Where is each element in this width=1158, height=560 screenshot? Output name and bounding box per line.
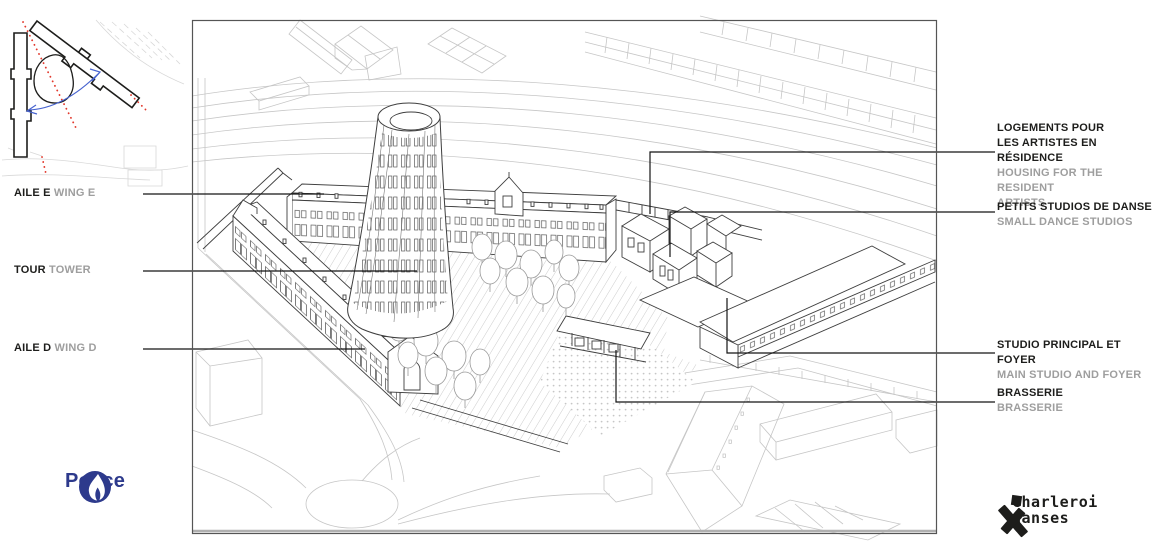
label-petits-studios-fr: PETITS STUDIOS DE DANSE [997, 200, 1158, 215]
label-studio-principal: STUDIO PRINCIPAL ET FOYER MAIN STUDIO AN… [997, 338, 1158, 383]
charleroi-x-icon [998, 494, 1032, 538]
label-brasserie-fr: BRASSERIE [997, 386, 1158, 401]
label-aile-e: AILE E WING E [14, 186, 95, 201]
axonometric-drawing [143, 16, 995, 540]
label-petits-studios-en: SMALL DANCE STUDIOS [997, 215, 1158, 230]
line-artwork [0, 0, 1158, 560]
label-aile-d-fr: AILE D [14, 342, 51, 354]
site-plan-context-lines [2, 20, 188, 186]
label-studio-principal-en: MAIN STUDIO AND FOYER [997, 368, 1158, 383]
site-plan-buildings [11, 17, 142, 157]
label-aile-d-en: WING D [55, 342, 97, 354]
label-logements-fr-line2: LES ARTISTES EN RÉSIDENCE [997, 136, 1158, 166]
aile-e-central-pavilion [495, 172, 523, 216]
label-brasserie: BRASSERIE BRASSERIE [997, 386, 1158, 416]
label-tour-fr: TOUR [14, 264, 46, 276]
site-plan-diagram [2, 17, 188, 186]
label-logements-fr-line1: LOGEMENTS POUR [997, 121, 1158, 136]
charleroi-danses-logo: charleroi danses [998, 494, 1098, 526]
existing-hall [666, 386, 784, 532]
label-tour: TOUR TOWER [14, 263, 91, 278]
site-plan-wing-d-footprint [27, 17, 142, 112]
police-flame-icon [64, 466, 126, 508]
site-plan-wing-e-footprint [11, 33, 31, 157]
label-studio-principal-fr: STUDIO PRINCIPAL ET FOYER [997, 338, 1158, 368]
architectural-diagram-page: AILE E WING E TOUR TOWER AILE D WING D L… [0, 0, 1158, 560]
site-plan-tower-footprint [34, 55, 73, 103]
label-logements-en-line1: HOUSING FOR THE RESIDENT [997, 166, 1158, 196]
label-petits-studios: PETITS STUDIOS DE DANSE SMALL DANCE STUD… [997, 200, 1158, 230]
roundabout [306, 480, 398, 528]
label-aile-e-fr: AILE E [14, 187, 51, 199]
label-tour-en: TOWER [49, 264, 91, 276]
label-logements: LOGEMENTS POUR LES ARTISTES EN RÉSIDENCE… [997, 121, 1158, 211]
leader-logements [650, 152, 995, 214]
label-brasserie-en: BRASSERIE [997, 401, 1158, 416]
tower-opening [390, 112, 432, 130]
police-logo: Police [64, 466, 126, 493]
label-aile-e-en: WING E [54, 187, 96, 199]
label-aile-d: AILE D WING D [14, 341, 97, 356]
